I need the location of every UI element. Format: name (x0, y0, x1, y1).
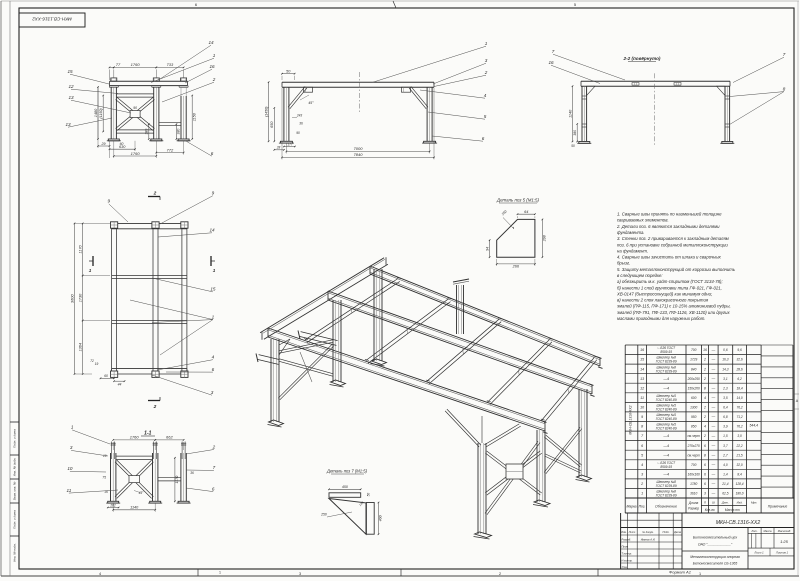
svg-text:4: 4 (99, 572, 101, 576)
svg-text:—: — (711, 463, 716, 467)
svg-text:ГОСТ 8240-89: ГОСТ 8240-89 (656, 408, 677, 412)
svg-text:МКН-СВ.1316-ХХ2: МКН-СВ.1316-ХХ2 (716, 520, 761, 526)
svg-text:5: 5 (641, 453, 643, 457)
svg-text:2: 2 (212, 444, 216, 449)
svg-text:—: — (711, 348, 716, 352)
svg-text:950: 950 (691, 415, 697, 419)
svg-text:2: 2 (703, 415, 706, 419)
svg-text:128,4: 128,4 (736, 482, 744, 486)
svg-text:Подп.: Подп. (663, 530, 670, 534)
svg-text:Подп. и дата: Подп. и дата (13, 510, 17, 529)
svg-text:1,4: 1,4 (723, 473, 728, 477)
svg-text:32,6: 32,6 (736, 358, 742, 362)
svg-text:2: 2 (703, 358, 706, 362)
svg-text:8509-93: 8509-93 (660, 465, 672, 469)
svg-text:2-2 (повёрнуто): 2-2 (повёрнуто) (623, 56, 661, 61)
svg-text:28: 28 (276, 146, 281, 150)
svg-text:2,3: 2,3 (722, 386, 728, 390)
svg-text:в) нанести 2 слоя лакокрасочно: в) нанести 2 слоя лакокрасочного покрыти… (617, 298, 709, 303)
svg-text:Металлоконструкция опорная: Металлоконструкция опорная (690, 555, 740, 559)
svg-text:14,3: 14,3 (722, 367, 728, 371)
svg-text:ГОСТ 8239-89: ГОСТ 8239-89 (656, 369, 677, 373)
svg-text:1780: 1780 (690, 482, 697, 486)
svg-text:—: — (711, 357, 716, 361)
svg-text:7000: 7000 (354, 146, 364, 151)
svg-text:50: 50 (571, 144, 575, 148)
svg-text:эмалей (ПФ-115, ПФ-171) с 10-1: эмалей (ПФ-115, ПФ-171) с 10-15% алюмини… (617, 304, 731, 309)
svg-text:380: 380 (145, 129, 149, 135)
svg-text:Деталь поз 5 (М1:5): Деталь поз 5 (М1:5) (496, 198, 539, 203)
svg-text:380: 380 (573, 130, 577, 136)
svg-text:2: 2 (499, 572, 501, 576)
svg-text:(1450): (1450) (264, 107, 268, 117)
svg-text:150х200: 150х200 (688, 386, 700, 390)
svg-text:Кол-во: Кол-во (705, 508, 715, 512)
svg-text:6: 6 (641, 444, 643, 448)
svg-text:—: — (711, 443, 716, 447)
svg-text:2: 2 (212, 77, 216, 82)
svg-text:Обозначение: Обозначение (655, 505, 677, 509)
svg-text:3,0: 3,0 (737, 434, 742, 438)
svg-text:Поз.: Поз. (639, 505, 646, 509)
svg-text:—: — (711, 453, 716, 457)
svg-text:662: 662 (166, 435, 173, 440)
svg-text:77: 77 (116, 62, 121, 67)
svg-text:—: — (711, 386, 716, 390)
svg-text:Дата: Дата (673, 530, 681, 534)
svg-text:544,4: 544,4 (750, 424, 759, 428)
svg-text:45°: 45° (139, 491, 145, 495)
svg-text:1760: 1760 (130, 435, 140, 440)
svg-text:250: 250 (320, 513, 327, 517)
svg-text:Разраб.: Разраб. (622, 538, 632, 542)
svg-text:6: 6 (704, 463, 706, 467)
svg-text:16: 16 (548, 60, 554, 65)
svg-text:3: 3 (211, 390, 214, 395)
svg-text:ХВ-0147 (быстросохнущей) как м: ХВ-0147 (быстросохнущей) как минимум одн… (616, 291, 713, 296)
svg-text:19: 19 (95, 362, 99, 366)
svg-text:3. Стенки поз. 2 приваривается: 3. Стенки поз. 2 приваривается к закладн… (617, 236, 729, 241)
svg-text:14,0: 14,0 (736, 396, 742, 400)
svg-text:свариваемых элементов.: свариваемых элементов. (617, 218, 669, 223)
svg-text:—: — (711, 482, 716, 486)
svg-text:—: — (711, 472, 716, 476)
svg-text:2: 2 (484, 70, 488, 75)
svg-text:18,4: 18,4 (736, 386, 742, 390)
svg-text:5: 5 (484, 114, 487, 119)
svg-text:4: 4 (484, 93, 487, 98)
svg-text:8: 8 (641, 425, 643, 429)
svg-text:14: 14 (208, 40, 214, 45)
svg-text:Масштаб: Масштаб (778, 529, 791, 533)
svg-text:б) нанести 1 слой грунтовки ти: б) нанести 1 слой грунтовки типа ГФ-021,… (617, 285, 722, 290)
svg-text:772: 772 (167, 147, 174, 152)
svg-text:—: — (711, 405, 716, 409)
svg-text:19: 19 (103, 454, 107, 458)
svg-text:1140: 1140 (130, 506, 139, 510)
svg-text:177: 177 (287, 142, 293, 146)
svg-text:15: 15 (210, 287, 216, 292)
svg-text:600: 600 (691, 396, 697, 400)
svg-text:—4: —4 (662, 453, 669, 457)
svg-text:3: 3 (299, 572, 301, 576)
svg-text:2: 2 (703, 434, 706, 438)
svg-text:6,2: 6,2 (737, 377, 742, 381)
svg-text:94: 94 (485, 247, 489, 251)
svg-text:1: 1 (213, 268, 216, 273)
svg-text:8: 8 (704, 453, 706, 457)
svg-text:400: 400 (379, 515, 383, 521)
svg-text:Длина: Длина (688, 501, 699, 505)
svg-text:—: — (711, 396, 716, 400)
svg-text:Листов 1: Листов 1 (775, 551, 789, 555)
svg-text:(1150): (1150) (99, 108, 103, 118)
svg-text:—: — (711, 377, 716, 381)
svg-text:на фундамент.: на фундамент. (617, 248, 648, 253)
svg-text:6: 6 (704, 444, 706, 448)
svg-text:—4: —4 (662, 473, 669, 477)
svg-text:ГОСТ 8240-89: ГОСТ 8240-89 (656, 417, 677, 421)
svg-text:6,4: 6,4 (723, 406, 728, 410)
svg-text:8,4: 8,4 (737, 473, 742, 477)
svg-text:6: 6 (482, 136, 485, 141)
svg-text:ГОСТ 8239-89: ГОСТ 8239-89 (656, 360, 677, 364)
svg-text:12: 12 (68, 84, 74, 89)
svg-text:11: 11 (67, 488, 72, 493)
svg-text:Масса нт: Масса нт (725, 508, 740, 512)
svg-text:8: 8 (704, 386, 706, 390)
svg-text:15: 15 (67, 69, 73, 74)
svg-text:266: 266 (512, 265, 520, 269)
svg-text:3,5: 3,5 (723, 396, 728, 400)
svg-text:№ докум.: № докум. (642, 530, 654, 534)
svg-text:1: 1 (641, 492, 643, 496)
svg-text:7840: 7840 (354, 152, 364, 157)
svg-text:—: — (711, 415, 716, 419)
svg-text:45°: 45° (308, 101, 314, 105)
svg-text:75: 75 (102, 475, 106, 479)
svg-text:—4: —4 (662, 444, 669, 448)
svg-text:1: 1 (212, 314, 215, 319)
svg-text:21,4: 21,4 (721, 482, 728, 486)
svg-text:14: 14 (209, 228, 215, 233)
svg-text:700: 700 (691, 348, 697, 352)
svg-text:90: 90 (296, 131, 300, 135)
svg-text:3,7: 3,7 (723, 444, 728, 448)
svg-text:650: 650 (270, 121, 274, 128)
svg-text:МКН-СВ.1316-ХХ2: МКН-СВ.1316-ХХ2 (32, 17, 72, 22)
svg-text:2: 2 (640, 482, 643, 486)
svg-text:10: 10 (640, 406, 644, 410)
svg-text:ГОСТ 8239-89: ГОСТ 8239-89 (656, 484, 677, 488)
svg-text:4: 4 (212, 355, 215, 360)
svg-text:10: 10 (67, 466, 73, 471)
svg-text:6: 6 (704, 482, 706, 486)
svg-text:11: 11 (640, 396, 644, 400)
svg-text:44: 44 (118, 383, 122, 387)
svg-text:2: 2 (703, 406, 706, 410)
svg-text:2: 2 (703, 367, 706, 371)
svg-text:5. Защиту металлоконструкций о: 5. Защиту металлоконструкций от коррозии… (617, 267, 736, 272)
svg-text:16,3: 16,3 (722, 358, 728, 362)
svg-text:71,2: 71,2 (736, 415, 742, 419)
svg-text:9,6: 9,6 (737, 348, 742, 352)
svg-text:7: 7 (552, 49, 555, 54)
svg-text:1170: 1170 (79, 244, 83, 253)
svg-text:6: 6 (211, 151, 214, 156)
svg-text:4,0: 4,0 (723, 463, 728, 467)
svg-text:60: 60 (104, 374, 108, 378)
svg-text:850: 850 (691, 425, 697, 429)
svg-text:Изд.: Изд. (737, 501, 743, 505)
svg-text:36: 36 (299, 122, 303, 126)
svg-text:ОАО "____________": ОАО "____________" (698, 543, 733, 547)
svg-text:1730: 1730 (79, 293, 83, 302)
svg-text:21,5: 21,5 (735, 453, 742, 457)
svg-text:Иванов А.И.: Иванов А.И. (641, 538, 656, 542)
svg-text:1364: 1364 (79, 343, 83, 351)
svg-text:7: 7 (783, 52, 786, 57)
svg-text:3: 3 (485, 58, 488, 63)
svg-text:см.черт: см.черт (687, 453, 700, 457)
svg-text:243: 243 (296, 114, 303, 118)
svg-text:22,2: 22,2 (735, 444, 742, 448)
svg-text:733: 733 (167, 62, 174, 67)
svg-text:Мрк: Мрк (751, 501, 757, 505)
svg-text:ГОСТ 8239-89: ГОСТ 8239-89 (656, 494, 677, 498)
svg-text:1480: 1480 (94, 108, 98, 117)
svg-text:1: 1 (219, 571, 221, 575)
svg-text:60: 60 (120, 142, 124, 146)
svg-text:фундамента.: фундамента. (617, 230, 645, 235)
svg-text:9: 9 (641, 415, 643, 419)
svg-text:3610: 3610 (690, 492, 697, 496)
svg-text:Утв.: Утв. (622, 565, 628, 569)
svg-text:3,1: 3,1 (723, 377, 728, 381)
svg-text:Инв. № дубл.: Инв. № дубл. (13, 458, 17, 477)
svg-text:0,6: 0,6 (723, 348, 728, 352)
svg-text:2,7: 2,7 (722, 453, 728, 457)
svg-text:1: 1 (485, 41, 488, 46)
svg-text:1729: 1729 (690, 358, 697, 362)
svg-text:1: 1 (699, 572, 701, 576)
svg-text:4: 4 (704, 396, 706, 400)
svg-text:1760: 1760 (131, 62, 141, 67)
svg-text:298: 298 (542, 235, 546, 242)
svg-text:4. Сварные швы зачистить от шл: 4. Сварные швы зачистить от шлака и свар… (617, 255, 722, 260)
svg-text:брызг.: брызг. (617, 261, 630, 266)
svg-text:2: 2 (703, 377, 706, 381)
svg-text:28,6: 28,6 (735, 367, 742, 371)
svg-text:160х160: 160х160 (688, 473, 700, 477)
svg-text:Лист 1: Лист 1 (753, 551, 764, 555)
svg-text:Размер: Размер (688, 507, 699, 511)
svg-text:200х250: 200х250 (687, 377, 700, 381)
svg-text:2: 2 (153, 191, 157, 197)
svg-text:в следующем порядке:: в следующем порядке: (617, 273, 663, 278)
svg-text:13: 13 (68, 95, 74, 100)
svg-text:8509-93: 8509-93 (660, 350, 672, 354)
svg-text:1300: 1300 (690, 406, 697, 410)
svg-text:1: 1 (213, 53, 216, 58)
svg-text:32,0: 32,0 (736, 463, 742, 467)
svg-text:180,0: 180,0 (736, 492, 744, 496)
svg-text:Лит.: Лит. (750, 529, 758, 533)
svg-text:9: 9 (108, 199, 111, 204)
svg-text:2: 2 (153, 404, 157, 410)
svg-text:—4: —4 (662, 434, 669, 438)
svg-text:МКН-СВ.1316-ХХ2: МКН-СВ.1316-ХХ2 (629, 405, 633, 434)
svg-text:1140: 1140 (568, 109, 572, 118)
svg-text:Н.контр.: Н.контр. (622, 559, 633, 563)
svg-text:Пров.: Пров. (622, 545, 629, 549)
svg-text:1,5: 1,5 (723, 434, 728, 438)
svg-text:Т.контр.: Т.контр. (622, 552, 633, 556)
svg-text:2. Детали поз. 6 являются закл: 2. Детали поз. 6 являются закладными дет… (616, 224, 720, 229)
svg-text:14: 14 (640, 367, 644, 371)
svg-text:см.черт: см.черт (687, 434, 700, 438)
svg-text:—: — (711, 367, 716, 371)
svg-text:1760: 1760 (131, 151, 141, 156)
svg-text:Взам. инв. №: Взам. инв. № (13, 481, 17, 500)
svg-text:Изм.: Изм. (621, 530, 627, 534)
svg-text:15: 15 (640, 358, 644, 362)
svg-text:16: 16 (703, 348, 707, 352)
svg-text:90: 90 (133, 106, 137, 110)
svg-text:840: 840 (691, 367, 697, 371)
svg-text:Примечание: Примечание (768, 505, 788, 509)
svg-text:16: 16 (640, 348, 644, 352)
svg-text:29: 29 (101, 142, 106, 146)
svg-text:9: 9 (212, 191, 215, 196)
svg-text:282: 282 (109, 503, 116, 507)
svg-text:6: 6 (212, 486, 215, 491)
svg-text:1: 1 (89, 268, 92, 273)
svg-text:62,5: 62,5 (722, 492, 728, 496)
svg-text:эмалей (ПФ-791, ПФ-133, ПФ-112: эмалей (ПФ-791, ПФ-133, ПФ-1126, ХВ-1120… (617, 310, 731, 315)
svg-text:4: 4 (704, 425, 706, 429)
svg-text:3,9: 3,9 (723, 425, 728, 429)
svg-text:450: 450 (342, 485, 348, 489)
svg-text:—4: —4 (662, 386, 669, 390)
svg-text:6,8: 6,8 (723, 415, 728, 419)
svg-text:а) обезжирить м.к. уайт-спирит: а) обезжирить м.к. уайт-спиритом (ГОСТ 3… (617, 279, 723, 284)
svg-text:6: 6 (704, 473, 706, 477)
svg-text:поз. 6 при установке собранной: поз. 6 при установке собранной металлоко… (617, 242, 728, 247)
svg-text:270х270: 270х270 (687, 444, 700, 448)
svg-text:16: 16 (209, 64, 215, 69)
svg-text:8: 8 (783, 87, 786, 92)
svg-text:ш: ш (712, 501, 715, 505)
svg-text:13: 13 (640, 377, 644, 381)
svg-text:76,2: 76,2 (736, 406, 742, 410)
svg-text:6: 6 (212, 367, 215, 372)
svg-text:п: п (704, 501, 706, 505)
svg-text:76,2: 76,2 (736, 425, 742, 429)
svg-text:13: 13 (65, 122, 71, 127)
svg-text:50: 50 (367, 493, 371, 497)
svg-text:3: 3 (70, 445, 73, 450)
svg-text:Битоносмесительный цех: Битоносмесительный цех (693, 536, 737, 540)
svg-text:3600: 3600 (69, 293, 74, 303)
svg-text:Подп. и дата: Подп. и дата (13, 429, 17, 448)
svg-text:64: 64 (524, 210, 528, 214)
svg-text:ГОСТ 8240-89: ГОСТ 8240-89 (656, 427, 677, 431)
svg-text:36: 36 (190, 471, 194, 475)
svg-text:1170: 1170 (175, 476, 179, 484)
svg-text:—: — (711, 434, 716, 438)
svg-text:Лист: Лист (628, 530, 637, 534)
svg-text:ГОСТ 8240-89: ГОСТ 8240-89 (656, 398, 677, 402)
svg-text:Масса: Масса (764, 529, 772, 533)
svg-text:Дет.: Дет. (721, 501, 729, 505)
svg-text:Бетоносмесителя СБ-1365: Бетоносмесителя СБ-1365 (693, 562, 738, 566)
svg-text:1150: 1150 (192, 112, 196, 121)
svg-text:3: 3 (641, 473, 643, 477)
svg-text:Деталь поз 7 (М1:5): Деталь поз 7 (М1:5) (326, 469, 368, 474)
svg-text:Инв. № подл.: Инв. № подл. (13, 543, 17, 562)
svg-text:380: 380 (176, 129, 180, 135)
svg-text:1. Сварные швы принять по наим: 1. Сварные швы принять по наименьшей тол… (617, 212, 722, 217)
svg-text:Марка: Марка (626, 505, 636, 509)
svg-text:72: 72 (90, 359, 94, 363)
svg-text:—: — (711, 491, 716, 495)
svg-text:7: 7 (213, 465, 216, 470)
svg-text:700: 700 (691, 463, 697, 467)
svg-text:1:25: 1:25 (780, 539, 789, 544)
svg-text:1: 1 (71, 425, 74, 430)
svg-text:4: 4 (641, 463, 643, 467)
svg-text:3: 3 (704, 492, 706, 496)
svg-text:маслами пригодными для наружны: маслами пригодными для наружных работ. (617, 316, 705, 321)
svg-text:12: 12 (640, 386, 644, 390)
svg-text:—: — (711, 424, 716, 428)
svg-text:—4: —4 (662, 377, 669, 381)
svg-text:Формат А1: Формат А1 (669, 570, 691, 575)
